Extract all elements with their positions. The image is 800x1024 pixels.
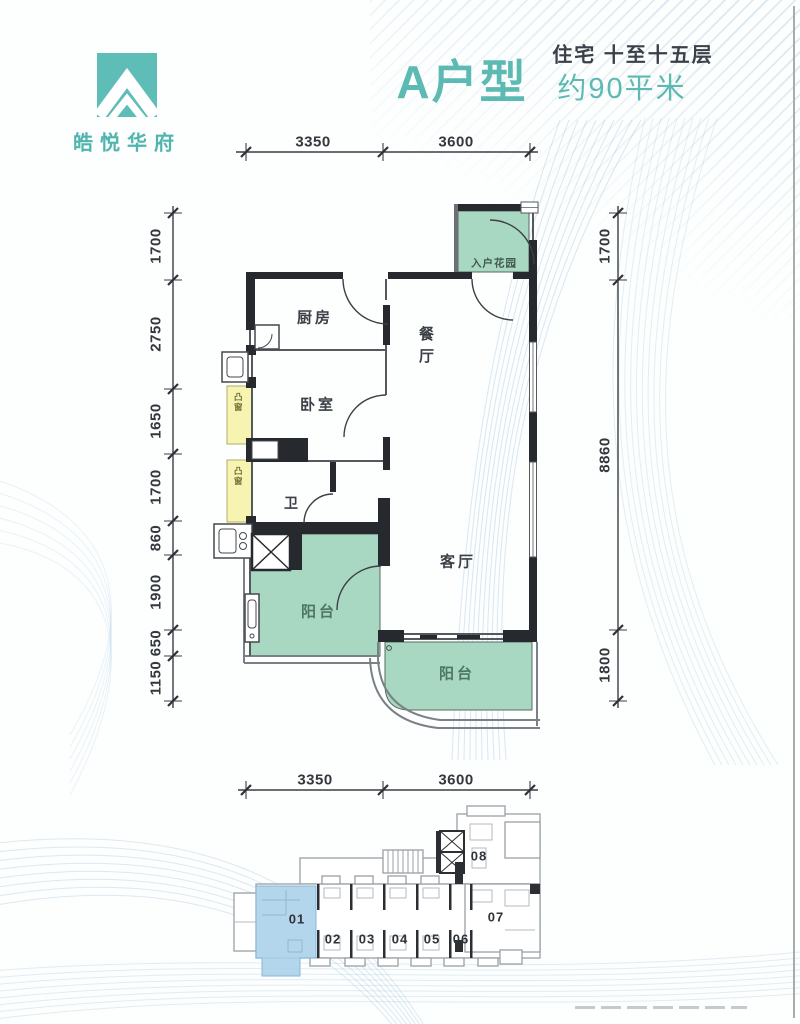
brand-name: 皓悦华府: [73, 127, 181, 156]
bay-window-label-1: 凸窗: [234, 392, 245, 412]
dim-right-8860: 8860: [597, 437, 614, 472]
dim-left-1700: 1700: [148, 228, 165, 263]
dim-top-3600: 3600: [438, 134, 473, 151]
dim-left-2750: 2750: [148, 316, 165, 351]
stairs-icon: [388, 850, 418, 873]
room-label-balcony2: 阳台: [439, 663, 475, 684]
page-edge-line: [793, 6, 795, 1018]
bay-window-label-2: 凸窗: [234, 466, 245, 486]
shaft: [252, 534, 290, 570]
unit-label-02: 02: [325, 932, 341, 947]
dim-left-1150: 1150: [148, 661, 165, 696]
room-label-living: 客厅: [440, 551, 476, 572]
dim-top-3350: 3350: [295, 134, 330, 151]
dim-left-1900: 1900: [148, 574, 165, 609]
floor-plan: [214, 202, 540, 728]
garden-west-wall: [454, 204, 458, 272]
unit-label-01: 01: [289, 912, 305, 927]
dim-left-1650: 1650: [148, 403, 165, 438]
unit-label-06: 06: [453, 932, 469, 947]
dim-left-650: 650: [148, 630, 165, 657]
room-label-kitchen: 厨房: [297, 307, 333, 328]
unit-label-05: 05: [424, 932, 440, 947]
unit-label-07: 07: [488, 910, 504, 925]
key-plan: [234, 806, 540, 976]
room-label-dining: 餐厅: [419, 324, 436, 368]
room-label-entry-garden: 入户花园: [471, 256, 517, 271]
room-label-bedroom: 卧室: [300, 394, 336, 415]
area-label: 约90平米: [557, 65, 686, 107]
dim-left-860: 860: [148, 525, 165, 552]
unit-label-04: 04: [392, 932, 408, 947]
fine-print-line: [575, 1006, 747, 1009]
dim-right-1800: 1800: [597, 647, 614, 682]
dim-right-1700: 1700: [597, 228, 614, 263]
room-label-balcony1: 阳台: [301, 601, 337, 622]
usage-floors: 住宅 十至十五层: [552, 39, 714, 68]
unit-type-title: A户型: [396, 46, 527, 112]
dim-left-1700b: 1700: [148, 469, 165, 504]
unit-label-03: 03: [359, 932, 375, 947]
room-label-bath: 卫: [284, 493, 298, 513]
dim-bottom-3350: 3350: [297, 772, 332, 789]
brand-logo: [97, 53, 157, 119]
dim-bottom-3600: 3600: [438, 772, 473, 789]
unit-label-08: 08: [471, 849, 487, 864]
floorplan-page: 皓悦华府 A户型 住宅 十至十五层 约90平米 3350 3600 1700 2…: [0, 0, 800, 1024]
